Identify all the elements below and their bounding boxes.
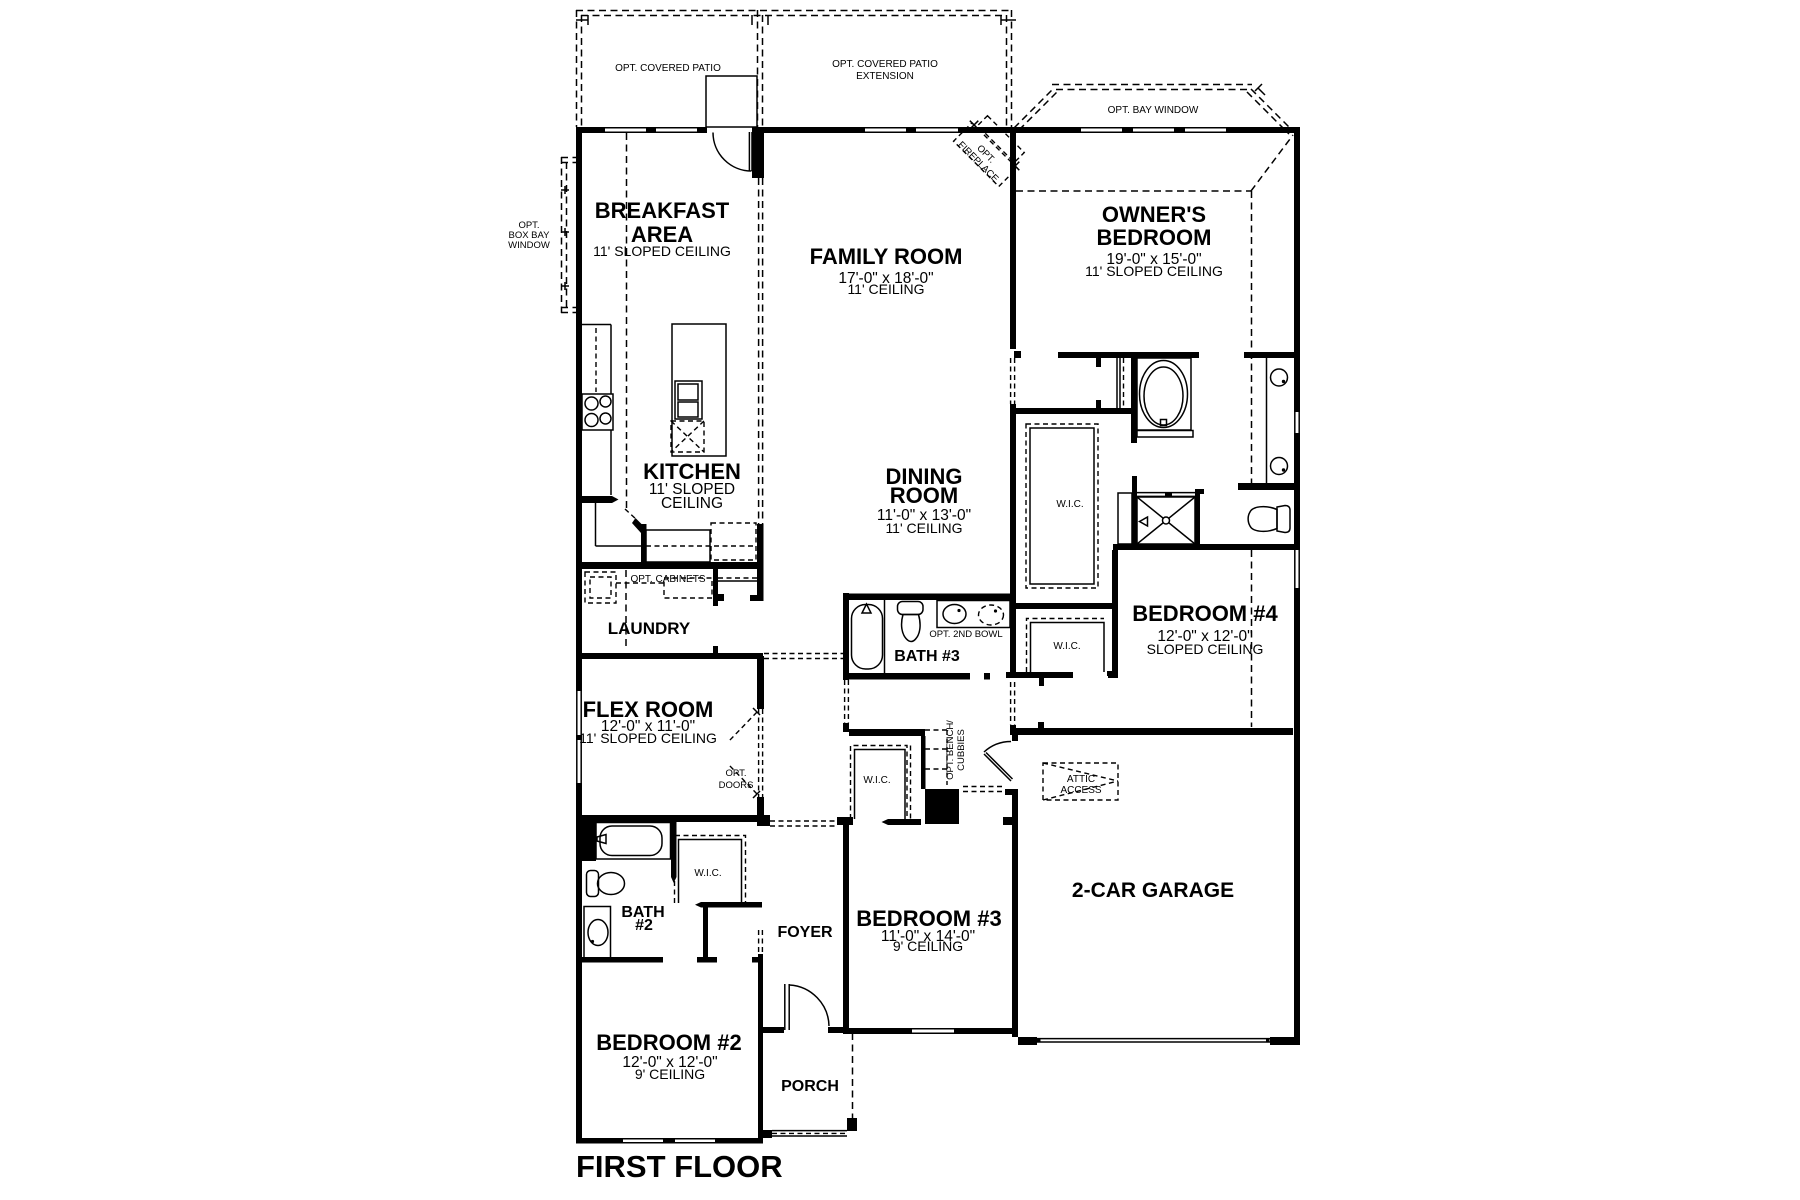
svg-text:W.I.C.: W.I.C. (694, 868, 721, 879)
svg-text:OPT. CABINETS: OPT. CABINETS (630, 574, 705, 585)
svg-text:11' SLOPED CEILING: 11' SLOPED CEILING (579, 730, 717, 746)
svg-text:PORCH: PORCH (781, 1078, 839, 1095)
svg-text:FAMILY ROOM: FAMILY ROOM (810, 244, 963, 269)
svg-text:9' CEILING: 9' CEILING (893, 938, 963, 954)
svg-text:LAUNDRY: LAUNDRY (608, 619, 691, 638)
svg-text:FIRST FLOOR: FIRST FLOOR (576, 1149, 783, 1184)
svg-text:EXTENSION: EXTENSION (856, 71, 914, 82)
svg-text:W.I.C.: W.I.C. (1056, 499, 1083, 510)
svg-text:BEDROOM #4: BEDROOM #4 (1132, 601, 1278, 626)
svg-text:11' SLOPED CEILING: 11' SLOPED CEILING (1085, 263, 1223, 279)
svg-text:OPT. BAY WINDOW: OPT. BAY WINDOW (1108, 105, 1199, 116)
svg-text:OWNER'S: OWNER'S (1102, 202, 1206, 227)
svg-text:2-CAR GARAGE: 2-CAR GARAGE (1072, 879, 1234, 902)
svg-text:OPT. 2ND BOWL: OPT. 2ND BOWL (929, 629, 1002, 640)
svg-text:BEDROOM: BEDROOM (1097, 225, 1212, 250)
svg-text:ROOM: ROOM (890, 483, 958, 508)
svg-text:OPT. BENCH/: OPT. BENCH/ (945, 720, 956, 780)
svg-text:OPT. COVERED PATIO: OPT. COVERED PATIO (832, 59, 938, 70)
svg-text:OPT. COVERED PATIO: OPT. COVERED PATIO (615, 63, 721, 74)
svg-text:BREAKFAST: BREAKFAST (595, 198, 730, 223)
svg-text:11' CEILING: 11' CEILING (885, 520, 962, 536)
svg-text:11' SLOPED CEILING: 11' SLOPED CEILING (593, 243, 731, 259)
svg-text:DOORS: DOORS (719, 780, 754, 791)
svg-text:BEDROOM #2: BEDROOM #2 (596, 1030, 741, 1055)
svg-text:BATH #3: BATH #3 (894, 648, 960, 665)
svg-text:W.I.C.: W.I.C. (1053, 641, 1080, 652)
svg-text:CUBBIES: CUBBIES (956, 729, 967, 771)
svg-text:FOYER: FOYER (777, 924, 833, 941)
svg-text:11' CEILING: 11' CEILING (847, 281, 924, 297)
svg-text:#2: #2 (635, 917, 653, 934)
svg-text:WINDOW: WINDOW (508, 240, 550, 251)
svg-text:OPT.: OPT. (725, 768, 746, 779)
svg-text:ATTIC: ATTIC (1067, 774, 1095, 785)
svg-text:CEILING: CEILING (661, 495, 723, 512)
svg-text:SLOPED CEILING: SLOPED CEILING (1147, 641, 1264, 657)
svg-text:W.I.C.: W.I.C. (863, 775, 890, 786)
svg-text:9' CEILING: 9' CEILING (635, 1066, 705, 1082)
svg-text:ACCESS: ACCESS (1060, 785, 1101, 796)
